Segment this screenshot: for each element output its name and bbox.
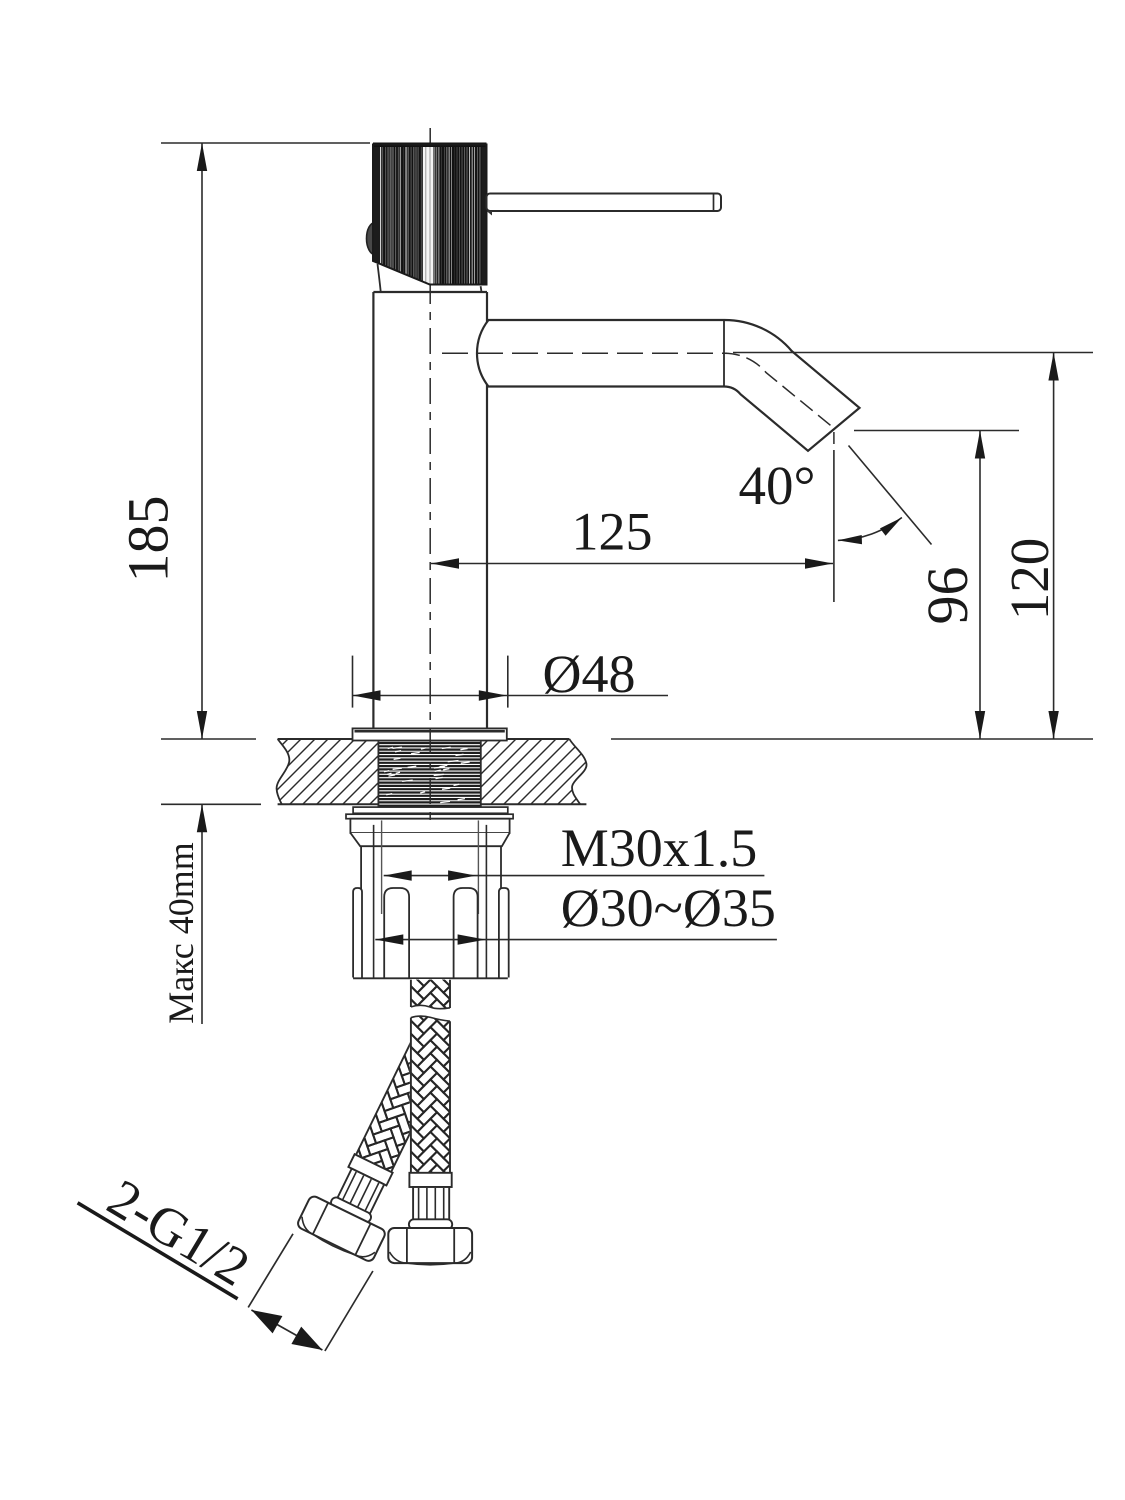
svg-text:96: 96 <box>915 567 980 625</box>
svg-text:120: 120 <box>999 538 1060 621</box>
svg-text:125: 125 <box>572 502 653 562</box>
svg-text:M30x1.5: M30x1.5 <box>561 818 758 878</box>
svg-text:Макс 40mm: Макс 40mm <box>161 842 201 1024</box>
svg-text:185: 185 <box>116 496 181 583</box>
svg-text:Ø30~Ø35: Ø30~Ø35 <box>561 878 776 938</box>
svg-text:Ø48: Ø48 <box>543 644 636 704</box>
svg-text:40°: 40° <box>739 455 816 516</box>
